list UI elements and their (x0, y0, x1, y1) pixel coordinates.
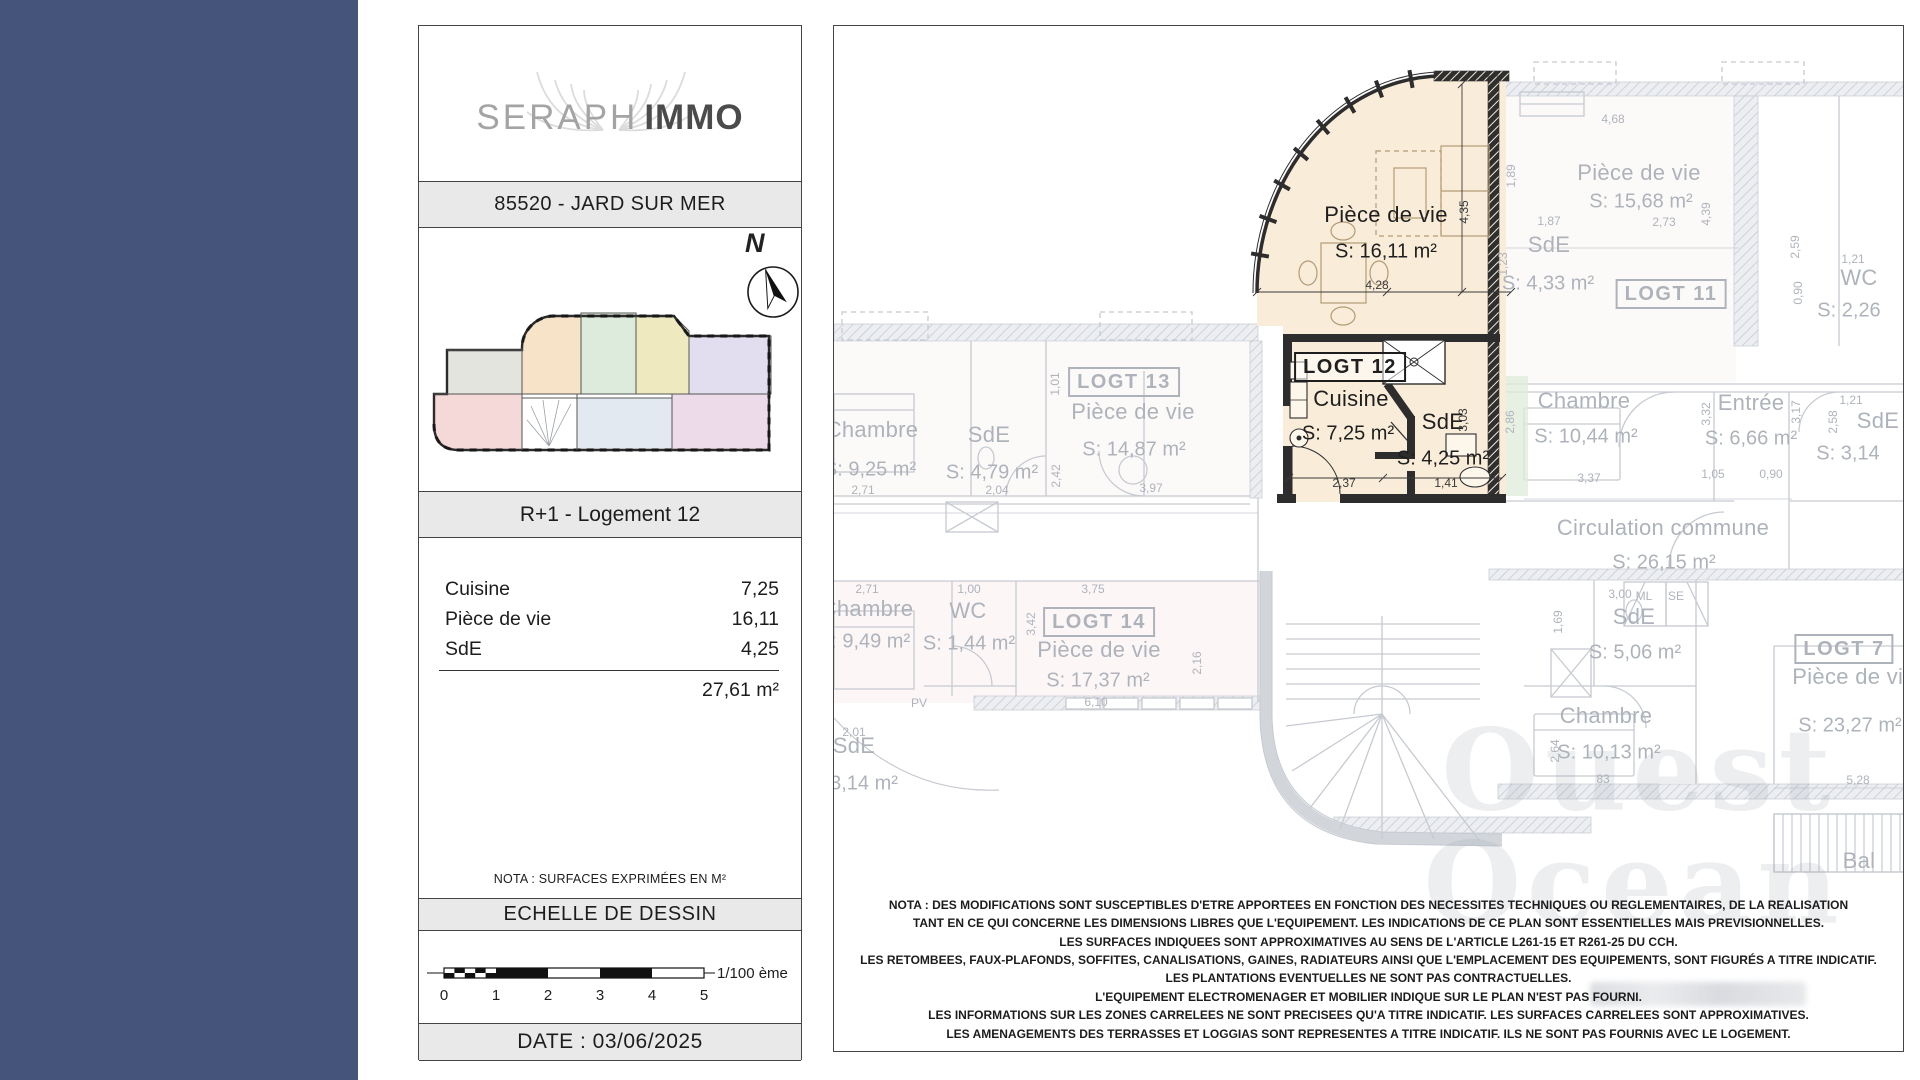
plan-label: 4,68 (1601, 112, 1624, 126)
plan-label: LOGT 13 (1068, 367, 1180, 397)
plan-label: 0,90 (1791, 281, 1805, 304)
plan-label: LOGT 11 (1616, 279, 1727, 309)
surface-rows: Cuisine7,25Pièce de vie16,11SdE4,25 (445, 574, 779, 664)
scale-tick: 5 (700, 987, 708, 1004)
plan-label: S: 16,11 m² (1335, 241, 1437, 264)
plan-label: Circulation commune (1557, 515, 1769, 541)
plan-label: ML (1636, 589, 1653, 603)
brand-name-light: SERAPH (476, 98, 638, 137)
plan-label: 3,17 (1789, 400, 1803, 423)
title-block-panel: SERAPHIMMO 85520 - JARD SUR MER (418, 25, 802, 1060)
plan-label: 2,58 (1826, 410, 1840, 433)
plan-label: Pièce de vie (1071, 399, 1194, 425)
plan-label: S: 7,25 m² (1302, 423, 1394, 446)
brand-name-bold: IMMO (644, 98, 743, 137)
surface-table: Cuisine7,25Pièce de vie16,11SdE4,25 27,6… (419, 538, 801, 738)
plan-label: 2,73 (1652, 215, 1675, 229)
surface-row: Cuisine7,25 (445, 574, 779, 604)
plan-label: 2,71 (851, 483, 874, 497)
plan-label: 1,01 (1048, 372, 1062, 395)
legal-line: LES AMENAGEMENTS DES TERRASSES ET LOGGIA… (834, 1025, 1903, 1043)
legal-line: NOTA : DES MODIFICATIONS SONT SUSCEPTIBL… (834, 896, 1903, 914)
plan-label: S: 10,13 m² (1557, 742, 1660, 765)
north-arrow: N (743, 232, 801, 327)
plan-label: 3,00 (1608, 587, 1631, 601)
brand-name: SERAPHIMMO (419, 98, 801, 138)
plan-label: S: 5,06 m² (1589, 642, 1681, 665)
plan-label: SdE (1528, 232, 1570, 258)
legal-line: LES RETOMBEES, FAUX-PLAFONDS, SOFFITES, … (834, 951, 1903, 969)
plan-label: 4,39 (1699, 202, 1713, 225)
legal-nota: NOTA : DES MODIFICATIONS SONT SUSCEPTIBL… (834, 896, 1903, 1043)
plan-label: Pièce de vie (1037, 637, 1160, 663)
surface-row: Pièce de vie16,11 (445, 604, 779, 634)
plan-label: Cuisine (1313, 386, 1388, 412)
plan-label: Chambre (1560, 703, 1653, 729)
plan-label: SE (1668, 589, 1684, 603)
plan-label: S: 10,44 m² (1534, 426, 1637, 449)
plan-label: Chambre (833, 596, 913, 622)
surface-row: SdE4,25 (445, 634, 779, 664)
plan-label: 1,89 (1504, 164, 1518, 187)
plan-label: 2,42 (1049, 464, 1063, 487)
location-title: 85520 - JARD SUR MER (419, 181, 801, 228)
plan-label: S: 9,25 m² (833, 459, 916, 482)
plan-label: 3,32 (1699, 402, 1713, 425)
legal-line: LES PLANTATIONS EVENTUELLES NE SONT PAS … (834, 969, 1903, 987)
left-blue-sidebar (0, 0, 358, 1080)
plan-label: 1,69 (1551, 610, 1565, 633)
floor-plan-panel: Ouest Ocean Pièce de vieS: 16,11 m²LOGT … (833, 25, 1904, 1052)
plan-label: 0,90 (1759, 467, 1782, 481)
plan-label: Pièce de vie (1577, 160, 1700, 186)
plan-label: LOGT 12 (1294, 352, 1406, 382)
plan-label: Bal (1843, 848, 1876, 874)
level-title: R+1 - Logement 12 (419, 491, 801, 538)
scale-title: ECHELLE DE DESSIN (419, 898, 801, 931)
plan-label: 2,59 (1788, 235, 1802, 258)
plan-label: LOGT 7 (1794, 634, 1893, 664)
plan-label: Pièce de vie (1324, 202, 1447, 228)
plan-label: 3,97 (1139, 481, 1162, 495)
plan-label: S: 6,66 m² (1705, 428, 1797, 451)
plan-label: WC (1840, 265, 1877, 291)
plan-label: SdE (1857, 408, 1899, 434)
room-area-value: 7,25 (741, 574, 779, 604)
scale-tick: 2 (544, 987, 552, 1004)
plan-label: SdE (1613, 604, 1655, 630)
plan-label: 2,37 (1332, 476, 1355, 490)
plan-label: 4,28 (1365, 278, 1388, 292)
room-label: Cuisine (445, 574, 510, 604)
plan-label: 2,71 (855, 582, 878, 596)
plan-label: 2,16 (1190, 651, 1204, 674)
legal-line: LES INFORMATIONS SUR LES ZONES CARRELEES… (834, 1006, 1903, 1024)
room-area-value: 16,11 (732, 604, 779, 634)
plan-label: Pièce de vie (1792, 664, 1904, 690)
plan-label: 1,87 (1537, 214, 1560, 228)
plan-label: PV (911, 696, 927, 710)
plan-label: S: 15,68 m² (1589, 191, 1692, 214)
floor-plan: Ouest Ocean Pièce de vieS: 16,11 m²LOGT … (834, 26, 1903, 1051)
plan-label: 2,86 (1503, 410, 1517, 433)
scale-section: 012345 1/100 ème (419, 931, 801, 1023)
plan-label: Chambre (1538, 388, 1631, 414)
plan-label: 3,14 m² (833, 773, 898, 796)
plan-label: 5,28 (1846, 773, 1869, 787)
plan-label: S: 4,79 m² (946, 462, 1038, 485)
plan-label: S: 4,33 m² (1502, 273, 1594, 296)
plan-label: WC (949, 598, 986, 624)
plan-label: 3,75 (1081, 582, 1104, 596)
plan-label: SdE (968, 422, 1010, 448)
plan-label: S: 23,27 m² (1798, 715, 1901, 738)
table-rule (439, 670, 779, 671)
plan-label: Chambre (833, 417, 918, 443)
scale-ratio: 1/100 ème (717, 965, 788, 982)
plan-label: 3,37 (1577, 471, 1600, 485)
scale-tick: 3 (596, 987, 604, 1004)
plan-label: S: 26,15 m² (1612, 552, 1715, 575)
legal-line: LES SURFACES INDIQUEES SONT APPROXIMATIV… (834, 933, 1903, 951)
scale-tick: 1 (492, 987, 500, 1004)
plan-label: S: 1,44 m² (923, 633, 1015, 656)
plan-label: LOGT 14 (1043, 607, 1155, 637)
plan-label: 1,21 (1841, 252, 1864, 266)
plan-label: 4,35 (1457, 200, 1471, 223)
scale-tick: 4 (648, 987, 656, 1004)
room-area-value: 4,25 (741, 634, 779, 664)
plan-label: S: 4,25 m² (1397, 448, 1489, 471)
scale-tick: 0 (440, 987, 448, 1004)
date-title: DATE : 03/06/2025 (419, 1023, 801, 1061)
legal-line: TANT EN CE QUI CONCERNE LES DIMENSIONS L… (834, 914, 1903, 932)
plan-label: 2,04 (985, 483, 1008, 497)
plan-label: 3,03 (1456, 408, 1470, 431)
plan-label: 83 (1596, 772, 1609, 786)
plan-label: 6,10 (1084, 695, 1107, 709)
overview-plan-section: N (419, 228, 801, 491)
room-label: Pièce de vie (445, 604, 551, 634)
north-label: N (745, 228, 765, 259)
surface-total: 27,61 m² (445, 675, 779, 705)
plan-label: S: 14,87 m² (1082, 439, 1185, 462)
plan-label: 1,00 (957, 582, 980, 596)
plan-label: 1,05 (1701, 467, 1724, 481)
plan-label: S: 2,26 (1817, 300, 1880, 323)
plan-label: 2,01 (842, 725, 865, 739)
plan-label: 1,23 (1496, 252, 1510, 275)
room-label: SdE (445, 634, 482, 664)
plan-label: Entrée (1718, 390, 1785, 416)
plan-label: 3,42 (1024, 612, 1038, 635)
surface-nota: NOTA : SURFACES EXPRIMÉES EN M² (419, 872, 801, 886)
plan-label: S: 9,49 m² (833, 631, 910, 654)
plan-label: S: 3,14 (1816, 443, 1879, 466)
legal-line: L'EQUIPEMENT ELECTROMENAGER ET MOBILIER … (834, 988, 1903, 1006)
plan-label: S: 17,37 m² (1046, 670, 1149, 693)
plan-label: 2,64 (1548, 739, 1562, 762)
logo: SERAPHIMMO (419, 26, 801, 181)
plan-label: 1,21 (1839, 393, 1862, 407)
plan-label: 1,41 (1434, 476, 1457, 490)
